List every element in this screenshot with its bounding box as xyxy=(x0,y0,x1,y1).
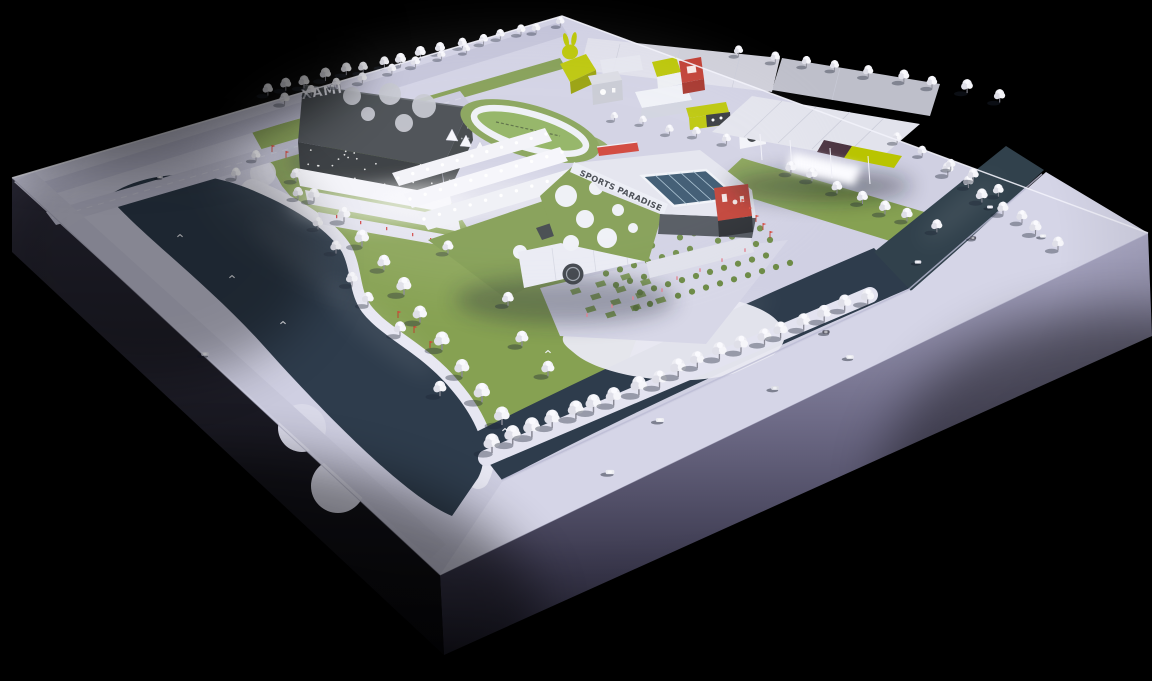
lighting xyxy=(0,0,1152,681)
model-photo: XAMI xyxy=(0,0,1152,681)
